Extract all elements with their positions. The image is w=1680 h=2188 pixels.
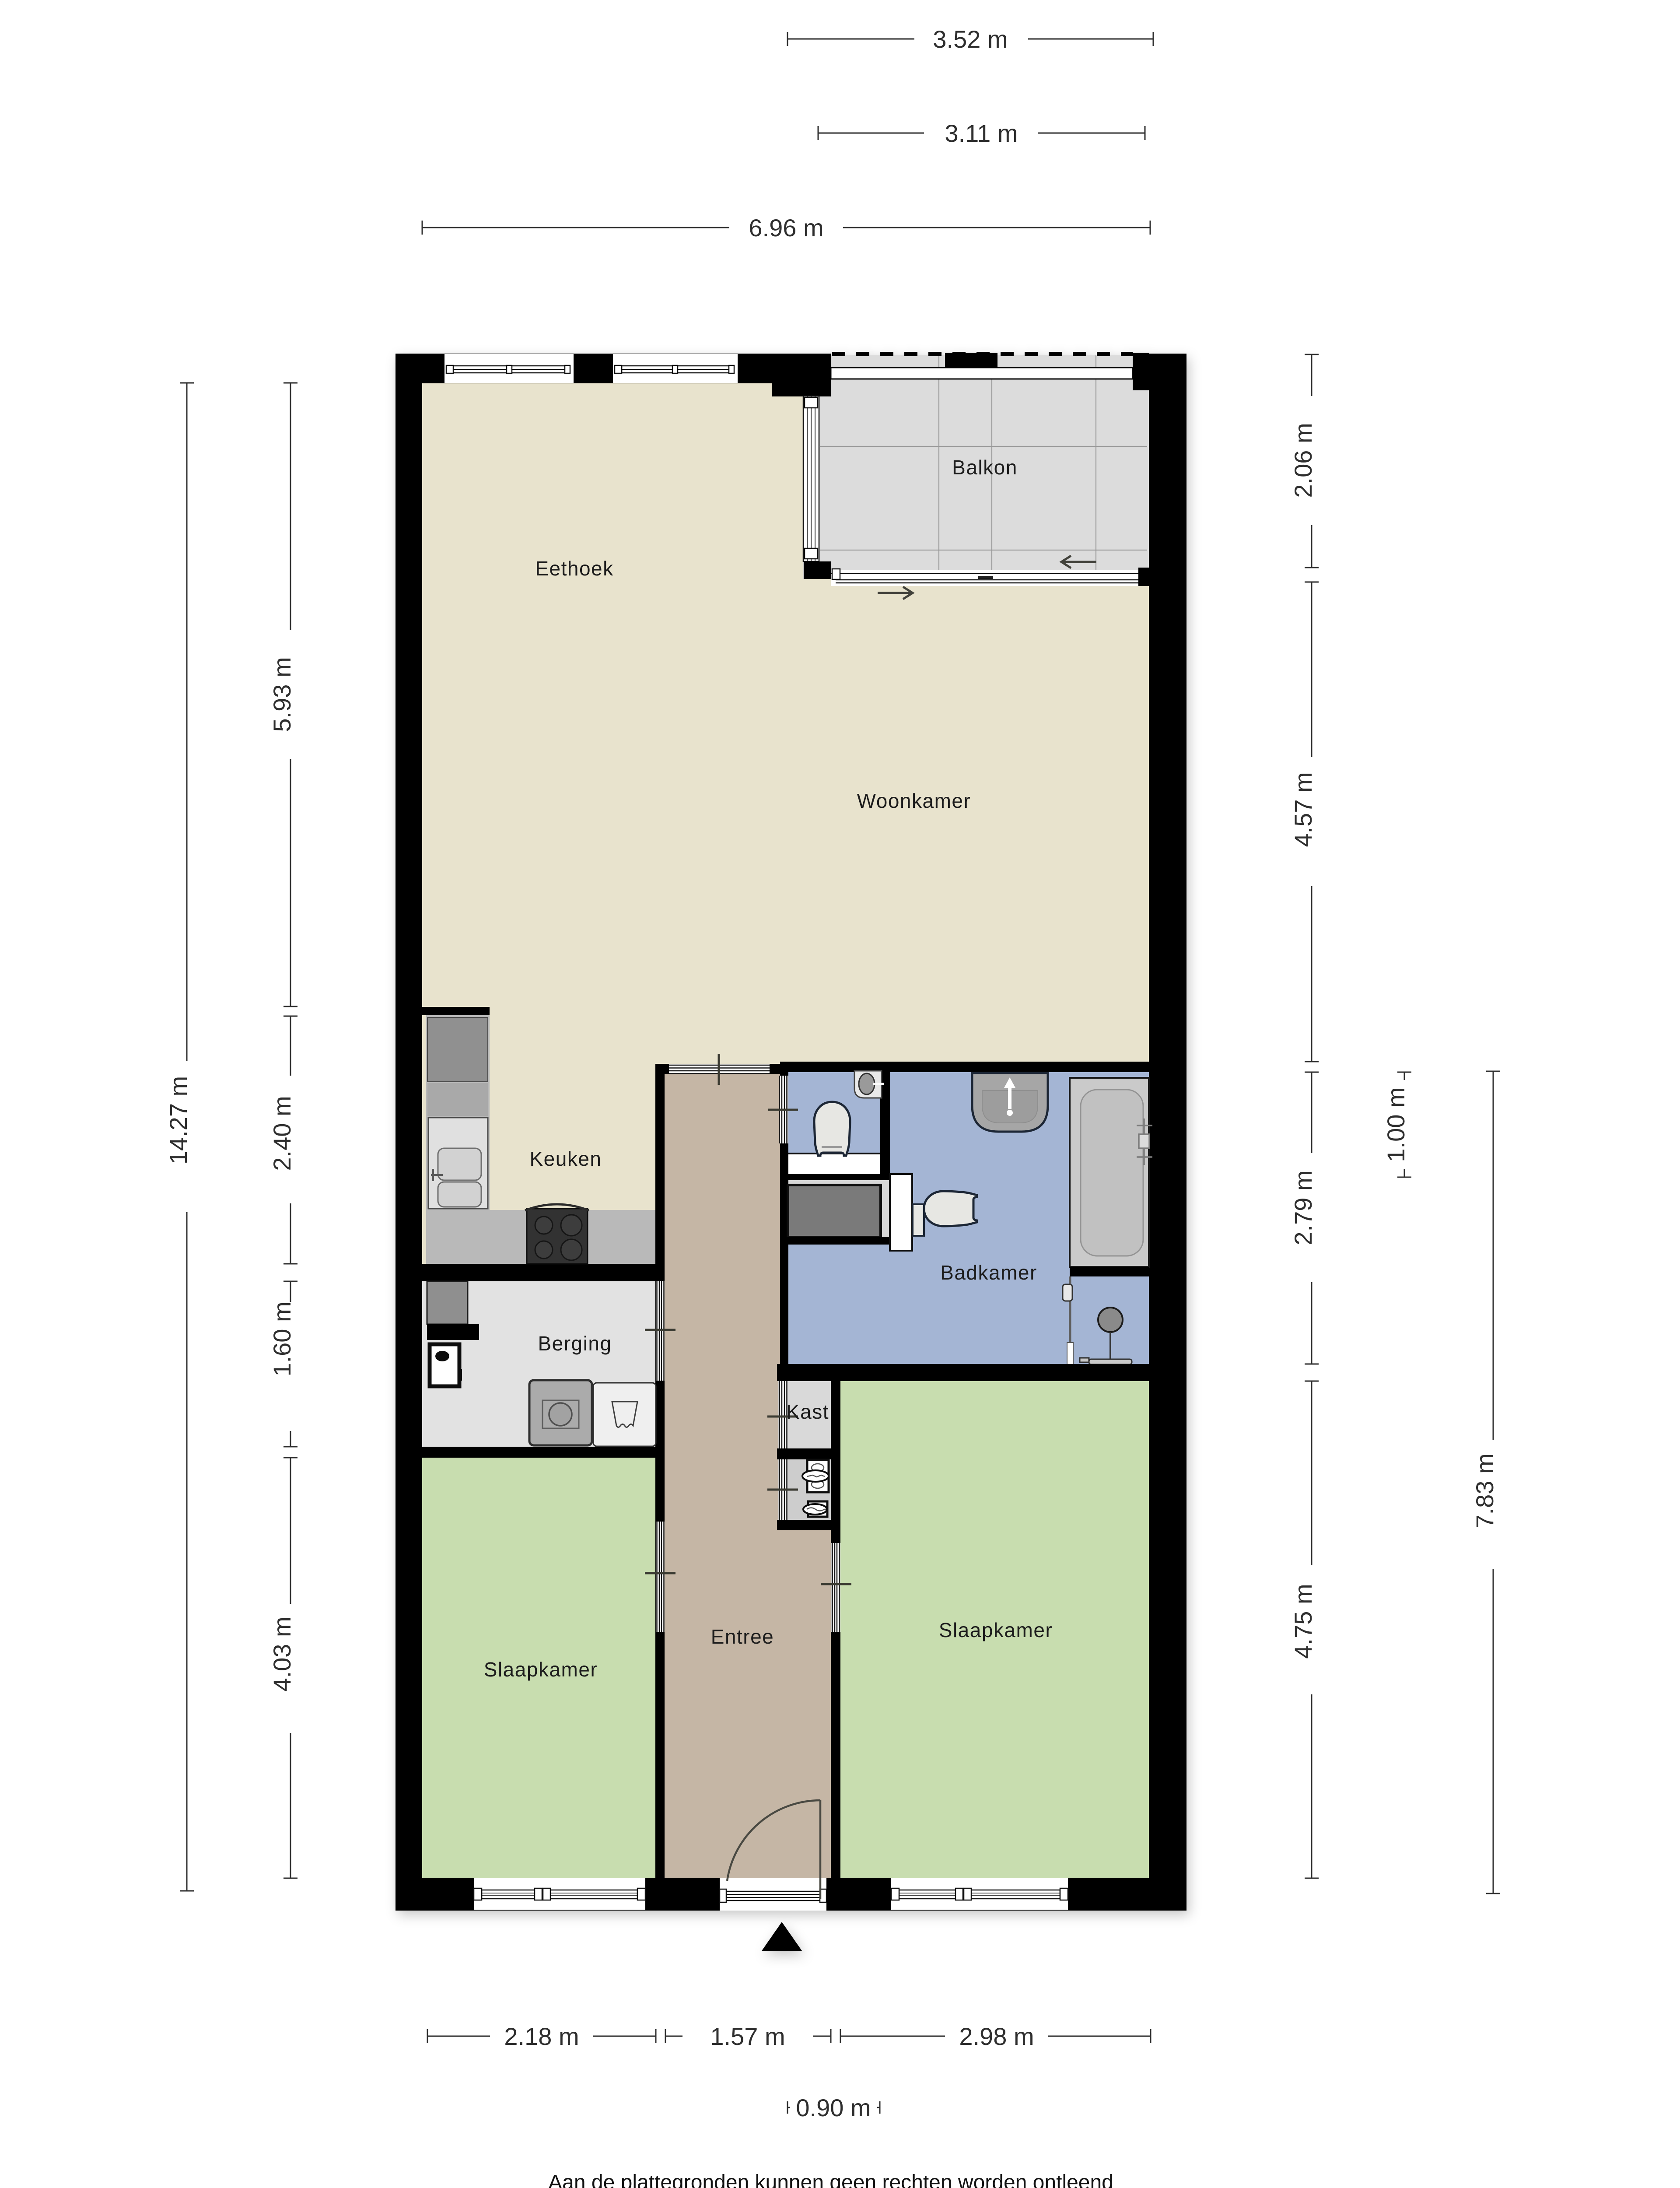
svg-text:6.96 m: 6.96 m xyxy=(749,214,823,242)
svg-text:2.18 m: 2.18 m xyxy=(504,2023,579,2050)
svg-text:2.98 m: 2.98 m xyxy=(959,2023,1034,2050)
svg-text:Slaapkamer: Slaapkamer xyxy=(939,1619,1053,1641)
svg-text:4.75 m: 4.75 m xyxy=(1289,1584,1317,1659)
svg-text:Aan de plattegronden kunnen ge: Aan de plattegronden kunnen geen rechten… xyxy=(548,2171,1113,2188)
svg-text:Balkon: Balkon xyxy=(952,456,1018,479)
svg-text:Berging: Berging xyxy=(538,1332,612,1355)
svg-text:14.27 m: 14.27 m xyxy=(164,1076,192,1164)
svg-text:0.90 m: 0.90 m xyxy=(796,2094,871,2121)
svg-text:Badkamer: Badkamer xyxy=(940,1261,1037,1284)
svg-text:Woonkamer: Woonkamer xyxy=(857,789,971,812)
svg-text:3.52 m: 3.52 m xyxy=(933,25,1008,53)
svg-text:4.03 m: 4.03 m xyxy=(268,1616,296,1691)
svg-text:2.06 m: 2.06 m xyxy=(1289,423,1317,498)
svg-text:2.40 m: 2.40 m xyxy=(268,1096,296,1171)
svg-text:1.57 m: 1.57 m xyxy=(710,2023,785,2050)
svg-text:1.60 m: 1.60 m xyxy=(268,1301,296,1376)
svg-text:Keuken: Keuken xyxy=(529,1147,602,1170)
svg-text:4.57 m: 4.57 m xyxy=(1289,772,1317,847)
svg-text:Entree: Entree xyxy=(711,1625,774,1648)
svg-text:Eethoek: Eethoek xyxy=(535,557,613,580)
svg-text:7.83 m: 7.83 m xyxy=(1471,1453,1498,1528)
svg-text:2.79 m: 2.79 m xyxy=(1289,1170,1317,1245)
svg-text:3.11 m: 3.11 m xyxy=(945,119,1018,147)
svg-text:5.93 m: 5.93 m xyxy=(268,657,296,732)
svg-text:1.00 m: 1.00 m xyxy=(1382,1087,1410,1162)
svg-text:Slaapkamer: Slaapkamer xyxy=(484,1658,598,1681)
svg-text:Kast: Kast xyxy=(786,1400,829,1423)
